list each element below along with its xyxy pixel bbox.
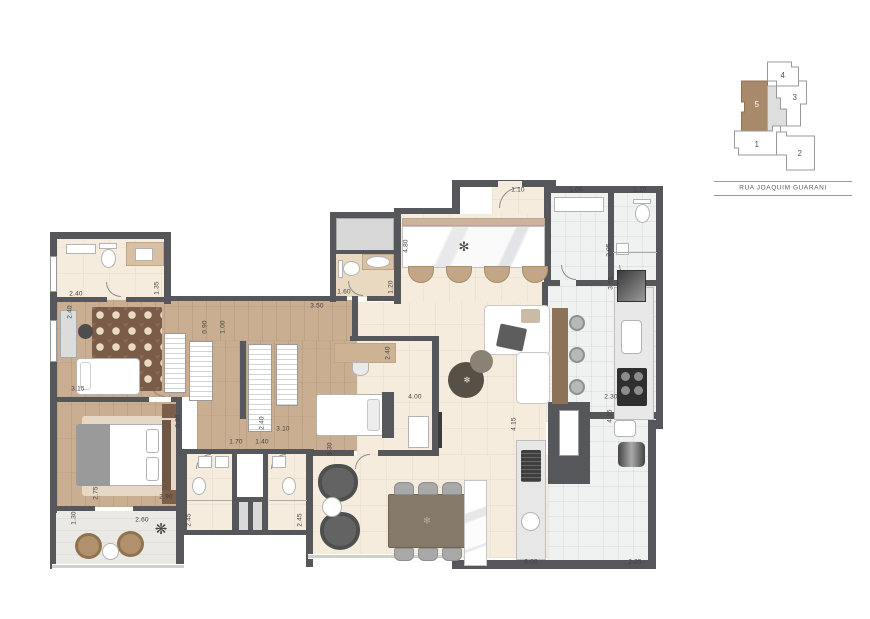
wall <box>648 424 656 567</box>
dimension-label: 0.85 <box>175 414 182 427</box>
shaft-duct <box>239 502 248 530</box>
pillow <box>367 399 380 431</box>
dimension-label: 3.30 <box>327 442 334 455</box>
dimension-label: 2.40 <box>385 346 392 359</box>
dimension-label: 1.60 <box>337 289 350 296</box>
dimension-label: 4.80 <box>403 239 410 252</box>
dining-chair <box>394 548 414 561</box>
laundry-door-gap <box>560 280 576 286</box>
dimension-label: 2.45 <box>297 513 304 526</box>
dimension-label: 3.15 <box>71 386 84 393</box>
dimension-label: 0.90 <box>202 320 209 333</box>
counter-backsplash <box>402 218 545 226</box>
keyplan-unit-2-label: 2 <box>798 149 803 158</box>
sofa-pillow <box>521 309 540 323</box>
dining-chair <box>418 548 438 561</box>
dimension-label: 1.35 <box>154 281 161 294</box>
street-name: RUA JOAQUIM GUARANI <box>739 185 827 192</box>
bar-stool <box>569 379 585 395</box>
dimension-label: 2.40 <box>67 305 74 318</box>
armchair <box>320 512 360 550</box>
wall <box>164 296 336 301</box>
marble-bench <box>464 480 487 566</box>
wall <box>50 511 56 569</box>
wall <box>50 232 171 239</box>
dimension-label: 2.40 <box>69 291 82 298</box>
dimension-label: 6.00 <box>524 559 537 566</box>
dining-chair <box>442 482 462 495</box>
shower-glass <box>613 252 657 253</box>
pillow <box>146 457 159 481</box>
balcony-chair <box>117 531 144 557</box>
bed-headboard <box>162 420 171 490</box>
shower-box-floor <box>336 218 394 251</box>
wall <box>164 232 171 304</box>
laundry-counter <box>554 197 604 212</box>
wardrobe <box>276 344 298 406</box>
sink <box>135 248 153 261</box>
stove-burner <box>634 372 643 381</box>
dimension-label: 1.30 <box>71 511 78 524</box>
wall <box>240 341 246 419</box>
kitchen-sink <box>621 320 642 354</box>
street-divider-bottom <box>714 195 852 196</box>
dimension-label: 4.15 <box>607 409 614 422</box>
dimension-label: 1.10 <box>511 187 524 194</box>
dimension-label: 4.00 <box>408 394 421 401</box>
toilet-bowl <box>101 249 116 268</box>
wall <box>57 297 107 302</box>
toilet-bowl <box>282 477 296 495</box>
side-table <box>322 497 342 517</box>
washtub <box>614 420 636 437</box>
tv-panel <box>438 412 442 448</box>
dimension-label: 2.05 <box>606 243 613 256</box>
refrigerator <box>617 270 646 302</box>
bed-headboard <box>382 392 394 438</box>
sofa-chaise <box>516 352 550 404</box>
plant-icon: ❋ <box>155 520 168 538</box>
service-corridor-floor <box>548 484 590 562</box>
dimension-label: 3.10 <box>276 426 289 433</box>
dimension-label: 1.10 <box>633 187 646 194</box>
wall <box>50 396 57 513</box>
wall <box>57 506 95 511</box>
desk-chair <box>352 362 369 376</box>
wall <box>396 208 458 214</box>
side-table <box>102 543 119 560</box>
wall <box>608 186 614 286</box>
shower-glass <box>269 500 307 501</box>
keyplan-unit-2 <box>777 132 815 170</box>
storage-niche <box>559 410 579 456</box>
table-decor-icon: ✻ <box>464 376 471 385</box>
dimension-label: 1.70 <box>229 439 242 446</box>
dimension-label: 2.25 <box>628 559 641 566</box>
dimension-label: 2.30 <box>604 394 617 401</box>
street-divider-top <box>714 181 852 182</box>
stove-burner <box>634 386 643 395</box>
dimension-label: 2.90 <box>159 494 172 501</box>
bar-stool <box>569 315 585 331</box>
shaft-duct <box>253 502 262 530</box>
wardrobe <box>189 341 213 401</box>
floorplan-page: ✻ ❋ ✻ ✻ <box>0 0 870 619</box>
coffee-table <box>470 350 493 373</box>
shower-glass <box>187 500 232 501</box>
marble-counter <box>402 226 545 268</box>
flower-centerpiece-icon: ✻ <box>459 239 470 255</box>
stove-burner <box>621 386 630 395</box>
kitchen-bar <box>552 308 568 404</box>
keyplan: 1 2 3 4 5 <box>716 52 841 174</box>
toilet-bowl <box>343 261 360 276</box>
dimension-label: 3.50 <box>310 303 323 310</box>
wall <box>350 336 438 341</box>
water-heater <box>618 442 645 467</box>
dimension-label: 2.45 <box>186 513 193 526</box>
dimension-label: 3.55 <box>608 276 615 289</box>
keyplan-unit-1-label: 1 <box>755 140 760 149</box>
desk-chair <box>78 324 93 339</box>
dimension-label: 1.20 <box>388 280 395 293</box>
wall <box>394 208 401 304</box>
dimension-label: 1.00 <box>569 187 582 194</box>
wall <box>330 212 400 218</box>
dining-chair <box>394 482 414 495</box>
sink <box>272 456 286 468</box>
balcony-railing <box>52 564 184 569</box>
dimension-label: 1.40 <box>255 439 268 446</box>
wall <box>352 296 358 341</box>
shelf <box>66 244 96 254</box>
keyplan-unit-3-label: 3 <box>793 93 798 102</box>
window <box>50 320 57 362</box>
dimension-label: 2.60 <box>135 517 148 524</box>
toilet-bowl <box>192 477 206 495</box>
toilet-bowl <box>635 204 650 223</box>
dimension-label: 2.40 <box>259 416 266 429</box>
oval-sink <box>366 256 390 268</box>
wall <box>367 296 400 301</box>
armchair <box>318 464 358 502</box>
stove-burner <box>621 372 630 381</box>
cabinet <box>408 416 429 448</box>
wall <box>306 449 313 567</box>
wall <box>330 212 336 302</box>
dining-decor-icon: ✻ <box>423 516 431 527</box>
pillow <box>146 429 159 453</box>
wall <box>378 450 438 456</box>
dimension-label: 2.75 <box>93 486 100 499</box>
keyplan-unit-5-label: 5 <box>755 100 760 109</box>
window <box>50 256 57 292</box>
keyplan-unit-4-label: 4 <box>781 71 786 80</box>
wall <box>133 506 182 511</box>
sink <box>215 456 229 468</box>
wall <box>656 186 663 429</box>
dining-chair <box>418 482 438 495</box>
wall <box>182 449 314 454</box>
corridor-floor <box>164 300 357 341</box>
bar-stool <box>569 347 585 363</box>
wardrobe <box>164 333 186 393</box>
dining-chair <box>442 548 462 561</box>
service-area-floor <box>588 419 650 562</box>
wall <box>330 296 347 301</box>
dimension-label: 4.15 <box>511 417 518 430</box>
round-sink <box>521 512 540 531</box>
grill <box>521 450 541 482</box>
wall <box>57 397 149 402</box>
balcony-chair <box>75 533 102 559</box>
wall <box>548 280 610 286</box>
sink <box>616 243 629 255</box>
sink <box>198 456 212 468</box>
bed-blanket <box>76 424 110 486</box>
dimension-label: 1.00 <box>220 320 227 333</box>
